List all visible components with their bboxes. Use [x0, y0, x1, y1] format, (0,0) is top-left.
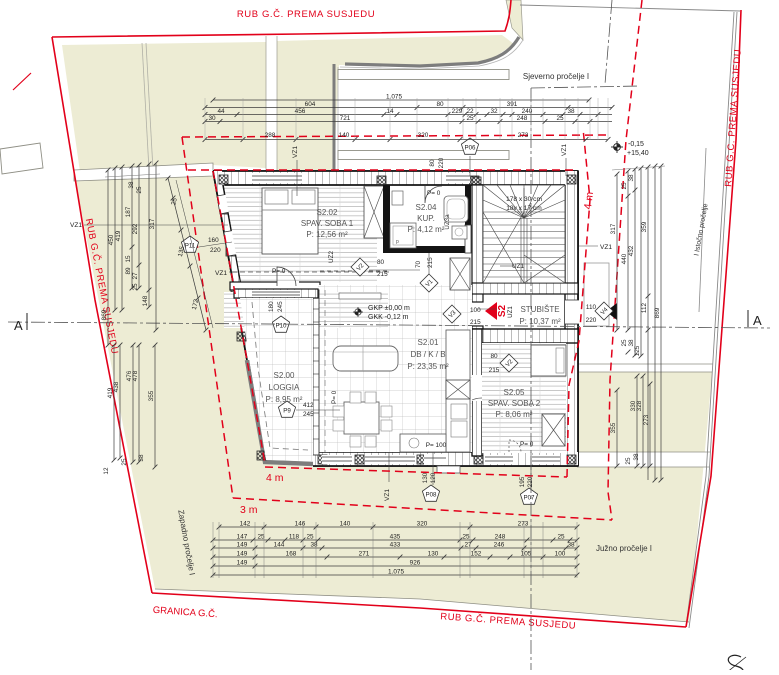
svg-text:438: 438 — [113, 381, 120, 392]
svg-text:144: 144 — [274, 541, 285, 548]
svg-text:80: 80 — [436, 101, 444, 108]
svg-text:Sjeverno pročelje I: Sjeverno pročelje I — [523, 72, 589, 81]
svg-text:P10: P10 — [275, 322, 287, 329]
svg-text:25: 25 — [625, 457, 632, 465]
svg-text:32: 32 — [490, 108, 498, 115]
svg-text:P: 10,37 m²: P: 10,37 m² — [519, 317, 561, 326]
svg-text:70: 70 — [415, 260, 422, 268]
svg-text:180: 180 — [268, 301, 275, 312]
svg-text:118: 118 — [289, 533, 300, 540]
svg-text:KUP.: KUP. — [417, 214, 435, 223]
svg-text:VZ1: VZ1 — [600, 244, 612, 251]
svg-text:S2.05: S2.05 — [504, 388, 525, 397]
svg-text:P: 12,56 m²: P: 12,56 m² — [306, 230, 348, 239]
svg-text:25: 25 — [557, 533, 565, 540]
svg-text:P= 0: P= 0 — [331, 390, 338, 404]
svg-text:168: 168 — [286, 550, 297, 557]
svg-text:25: 25 — [121, 458, 128, 466]
svg-text:25: 25 — [136, 186, 143, 194]
svg-text:478: 478 — [132, 370, 139, 381]
svg-text:P= 0: P= 0 — [520, 441, 534, 448]
svg-text:112: 112 — [641, 302, 648, 313]
svg-text:A: A — [753, 313, 762, 328]
svg-text:355: 355 — [610, 422, 617, 433]
svg-text:S2.04: S2.04 — [416, 203, 437, 212]
svg-text:1.075: 1.075 — [388, 568, 404, 575]
svg-text:38: 38 — [567, 541, 575, 548]
svg-text:450: 450 — [108, 234, 115, 245]
svg-text:VZ1: VZ1 — [384, 489, 391, 501]
svg-text:604: 604 — [305, 101, 316, 108]
svg-text:100: 100 — [555, 550, 566, 557]
svg-text:S2.00: S2.00 — [274, 371, 295, 380]
svg-text:248: 248 — [517, 115, 528, 122]
svg-text:P11: P11 — [185, 242, 196, 249]
svg-text:100: 100 — [470, 307, 481, 314]
svg-text:27: 27 — [464, 541, 472, 548]
svg-text:149: 149 — [237, 541, 248, 548]
svg-text:-0,15: -0,15 — [628, 141, 644, 148]
svg-text:271: 271 — [359, 550, 370, 557]
svg-text:DB / K / B: DB / K / B — [410, 350, 445, 359]
svg-text:1.075: 1.075 — [386, 93, 402, 100]
svg-text:30: 30 — [208, 115, 216, 122]
svg-text:25: 25 — [462, 533, 470, 540]
svg-text:317: 317 — [610, 223, 617, 234]
svg-text:147: 147 — [237, 533, 248, 540]
svg-text:125: 125 — [634, 345, 641, 356]
svg-text:220: 220 — [210, 247, 221, 254]
svg-text:215: 215 — [489, 367, 500, 374]
svg-text:721: 721 — [340, 115, 351, 122]
svg-text:149: 149 — [237, 550, 248, 557]
svg-text:435: 435 — [390, 533, 401, 540]
svg-text:245: 245 — [303, 411, 314, 418]
svg-text:VZ1: VZ1 — [70, 222, 82, 229]
svg-text:25: 25 — [466, 115, 474, 122]
svg-text:419: 419 — [115, 230, 122, 241]
svg-text:P= 0: P= 0 — [427, 190, 441, 197]
svg-text:S2: S2 — [497, 304, 508, 317]
svg-text:38: 38 — [128, 181, 135, 189]
svg-text:292: 292 — [132, 223, 139, 234]
svg-text:STUBIŠTE: STUBIŠTE — [520, 305, 559, 314]
svg-text:UZ1: UZ1 — [507, 306, 514, 318]
svg-text:22: 22 — [466, 108, 474, 115]
svg-text:140: 140 — [339, 132, 350, 139]
svg-text:246: 246 — [494, 541, 505, 548]
svg-text:GKK -0,12 m: GKK -0,12 m — [368, 314, 409, 321]
svg-text:149: 149 — [237, 559, 248, 566]
svg-text:120: 120 — [430, 472, 437, 483]
svg-text:P: 8,06 m²: P: 8,06 m² — [496, 410, 533, 419]
svg-text:195: 195 — [519, 476, 526, 487]
svg-text:25: 25 — [556, 115, 564, 122]
svg-text:229: 229 — [452, 108, 463, 115]
svg-text:25: 25 — [306, 533, 314, 540]
svg-text:140: 140 — [340, 520, 351, 527]
svg-text:Južno pročelje I: Južno pročelje I — [596, 544, 652, 553]
svg-text:UZ2: UZ2 — [328, 251, 335, 264]
svg-text:38: 38 — [628, 174, 635, 182]
svg-text:926: 926 — [410, 559, 421, 566]
svg-text:27: 27 — [132, 272, 139, 280]
svg-text:P9: P9 — [283, 407, 291, 414]
svg-text:80: 80 — [490, 353, 498, 360]
svg-text:GKP ±0,00 m: GKP ±0,00 m — [368, 305, 410, 312]
svg-text:S2.02: S2.02 — [317, 208, 338, 217]
svg-text:391: 391 — [507, 101, 518, 108]
svg-text:273: 273 — [518, 132, 529, 139]
svg-text:25: 25 — [132, 283, 139, 291]
svg-text:359: 359 — [641, 221, 648, 232]
svg-text:220: 220 — [586, 317, 597, 324]
svg-text:RUB G.Č. PREMA SUSJEDU: RUB G.Č. PREMA SUSJEDU — [237, 9, 375, 20]
svg-text:38: 38 — [138, 454, 145, 462]
svg-text:38: 38 — [633, 453, 640, 461]
svg-text:440: 440 — [621, 253, 628, 264]
svg-text:15: 15 — [125, 255, 132, 263]
svg-text:VZ1: VZ1 — [561, 144, 568, 156]
svg-text:320: 320 — [418, 132, 429, 139]
svg-text:44: 44 — [217, 108, 225, 115]
svg-text:P07: P07 — [523, 494, 535, 501]
svg-text:160: 160 — [208, 237, 219, 244]
svg-text:288: 288 — [265, 132, 276, 139]
svg-text:LOGGIA: LOGGIA — [269, 383, 300, 392]
svg-text:38: 38 — [628, 339, 635, 347]
svg-text:456: 456 — [295, 108, 306, 115]
svg-text:A: A — [14, 318, 23, 333]
svg-text:110: 110 — [586, 304, 597, 311]
svg-text:89: 89 — [125, 267, 132, 275]
svg-text:328: 328 — [636, 400, 643, 411]
svg-text:UZ1: UZ1 — [512, 263, 525, 270]
svg-text:38: 38 — [310, 541, 318, 548]
svg-text:320: 320 — [417, 520, 428, 527]
svg-text:273: 273 — [518, 520, 529, 527]
svg-text:105: 105 — [521, 550, 532, 557]
svg-text:317: 317 — [149, 218, 156, 229]
svg-text:178 x 30 cm: 178 x 30 cm — [506, 196, 542, 203]
svg-text:P08: P08 — [425, 491, 437, 498]
svg-text:12: 12 — [103, 467, 110, 475]
svg-text:25: 25 — [621, 182, 628, 190]
svg-text:248: 248 — [495, 533, 506, 540]
svg-text:215: 215 — [377, 271, 388, 278]
svg-text:P= 100: P= 100 — [426, 442, 447, 449]
svg-text:P= 0: P= 0 — [272, 268, 286, 275]
svg-text:+15,40: +15,40 — [627, 150, 649, 157]
svg-text:80: 80 — [429, 159, 436, 167]
svg-text:146: 146 — [295, 520, 306, 527]
svg-text:P06: P06 — [464, 144, 476, 151]
svg-text:433: 433 — [390, 541, 401, 548]
svg-text:355: 355 — [148, 390, 155, 401]
svg-text:869: 869 — [654, 307, 661, 318]
svg-text:152: 152 — [471, 550, 482, 557]
svg-text:273: 273 — [643, 414, 650, 425]
svg-text:215: 215 — [427, 257, 434, 268]
svg-text:VZ1: VZ1 — [215, 270, 227, 277]
svg-text:p: p — [396, 239, 399, 245]
svg-text:432: 432 — [628, 245, 635, 256]
svg-text:38: 38 — [567, 108, 575, 115]
svg-text:220: 220 — [438, 157, 445, 168]
svg-text:P: 4,12 m²: P: 4,12 m² — [408, 225, 445, 234]
svg-text:14: 14 — [386, 108, 394, 115]
svg-text:245: 245 — [277, 301, 284, 312]
svg-text:869: 869 — [101, 309, 108, 320]
svg-text:UZ3a: UZ3a — [444, 214, 451, 230]
svg-text:S2.01: S2.01 — [418, 338, 439, 347]
svg-text:25: 25 — [621, 339, 628, 347]
svg-text:80: 80 — [377, 259, 385, 266]
svg-text:142: 142 — [240, 520, 251, 527]
svg-text:148: 148 — [142, 295, 149, 306]
svg-text:130: 130 — [422, 472, 429, 483]
svg-text:220: 220 — [527, 476, 534, 487]
svg-text:VZ1: VZ1 — [292, 146, 299, 158]
svg-text:412: 412 — [303, 402, 314, 409]
svg-text:215: 215 — [470, 319, 481, 326]
svg-text:4 m: 4 m — [582, 191, 596, 210]
svg-text:18v x 17 cm: 18v x 17 cm — [506, 205, 542, 212]
svg-text:3 m: 3 m — [240, 504, 258, 516]
svg-text:SPAV. SOBA 1: SPAV. SOBA 1 — [301, 219, 354, 228]
svg-text:187: 187 — [125, 206, 132, 217]
svg-text:130: 130 — [428, 550, 439, 557]
svg-text:SPAV. SOBA 2: SPAV. SOBA 2 — [488, 399, 541, 408]
svg-text:4 m: 4 m — [266, 472, 284, 484]
svg-text:P: 23,35 m²: P: 23,35 m² — [407, 362, 449, 371]
